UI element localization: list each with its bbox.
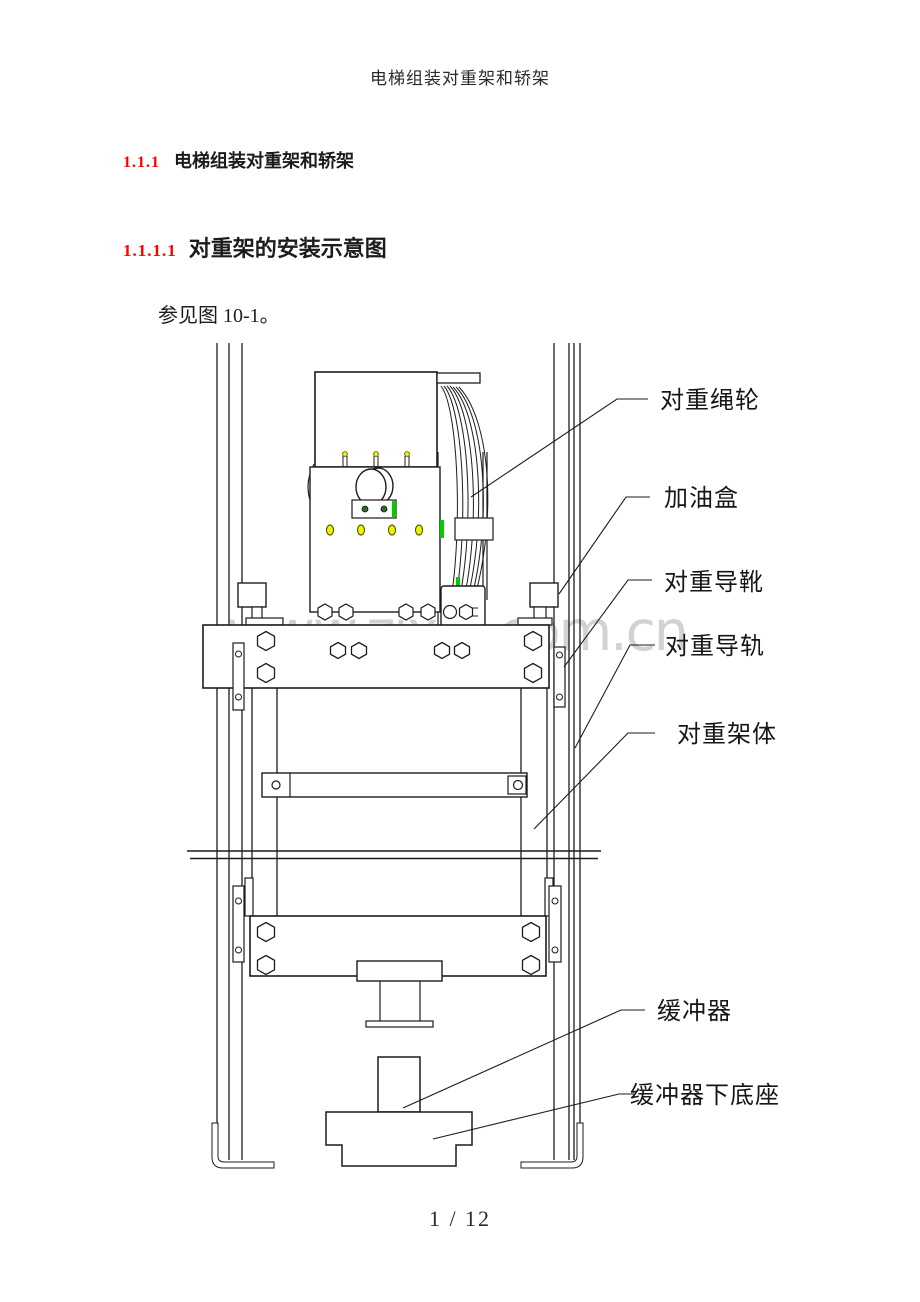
document-page: 电梯组装对重架和轿架 1.1.1电梯组装对重架和轿架 1.1.1.1对重架的安装… — [0, 0, 920, 1302]
left-rail-foot-bracket — [212, 1123, 274, 1168]
label-buffer-base: 缓冲器下底座 — [630, 1082, 780, 1109]
leader-lines — [403, 399, 655, 1139]
left-guide-rail — [217, 343, 242, 1160]
label-rope-sheave: 对重绳轮 — [660, 387, 760, 414]
middle-cross-bar — [262, 773, 527, 797]
label-guide-shoe: 对重导靴 — [664, 569, 764, 596]
mount-bracket — [352, 500, 396, 518]
section-break-lines — [187, 851, 601, 859]
right-guide-rail — [554, 343, 580, 1160]
right-guide-shoe-assembly — [518, 583, 558, 625]
figure-10-1-counterweight-diagram: 对重绳轮 加油盒 对重导靴 对重导轨 对重架体 缓冲器 缓冲器下底座 — [0, 0, 920, 1302]
buffer-striker-plate — [357, 961, 442, 1027]
rope-anchor-guard — [441, 586, 485, 626]
buffer-base-pedestal — [326, 1112, 472, 1166]
label-buffer: 缓冲器 — [657, 998, 732, 1025]
label-oil-box: 加油盒 — [664, 485, 739, 512]
left-guide-shoe-assembly — [238, 583, 283, 625]
rope-clamp-block — [455, 518, 493, 540]
page-number: 1 / 12 — [0, 1206, 920, 1232]
top-beam — [203, 625, 565, 710]
frame-uprights — [252, 688, 547, 916]
label-guide-rail: 对重导轨 — [665, 633, 765, 660]
label-frame-body: 对重架体 — [677, 721, 777, 748]
